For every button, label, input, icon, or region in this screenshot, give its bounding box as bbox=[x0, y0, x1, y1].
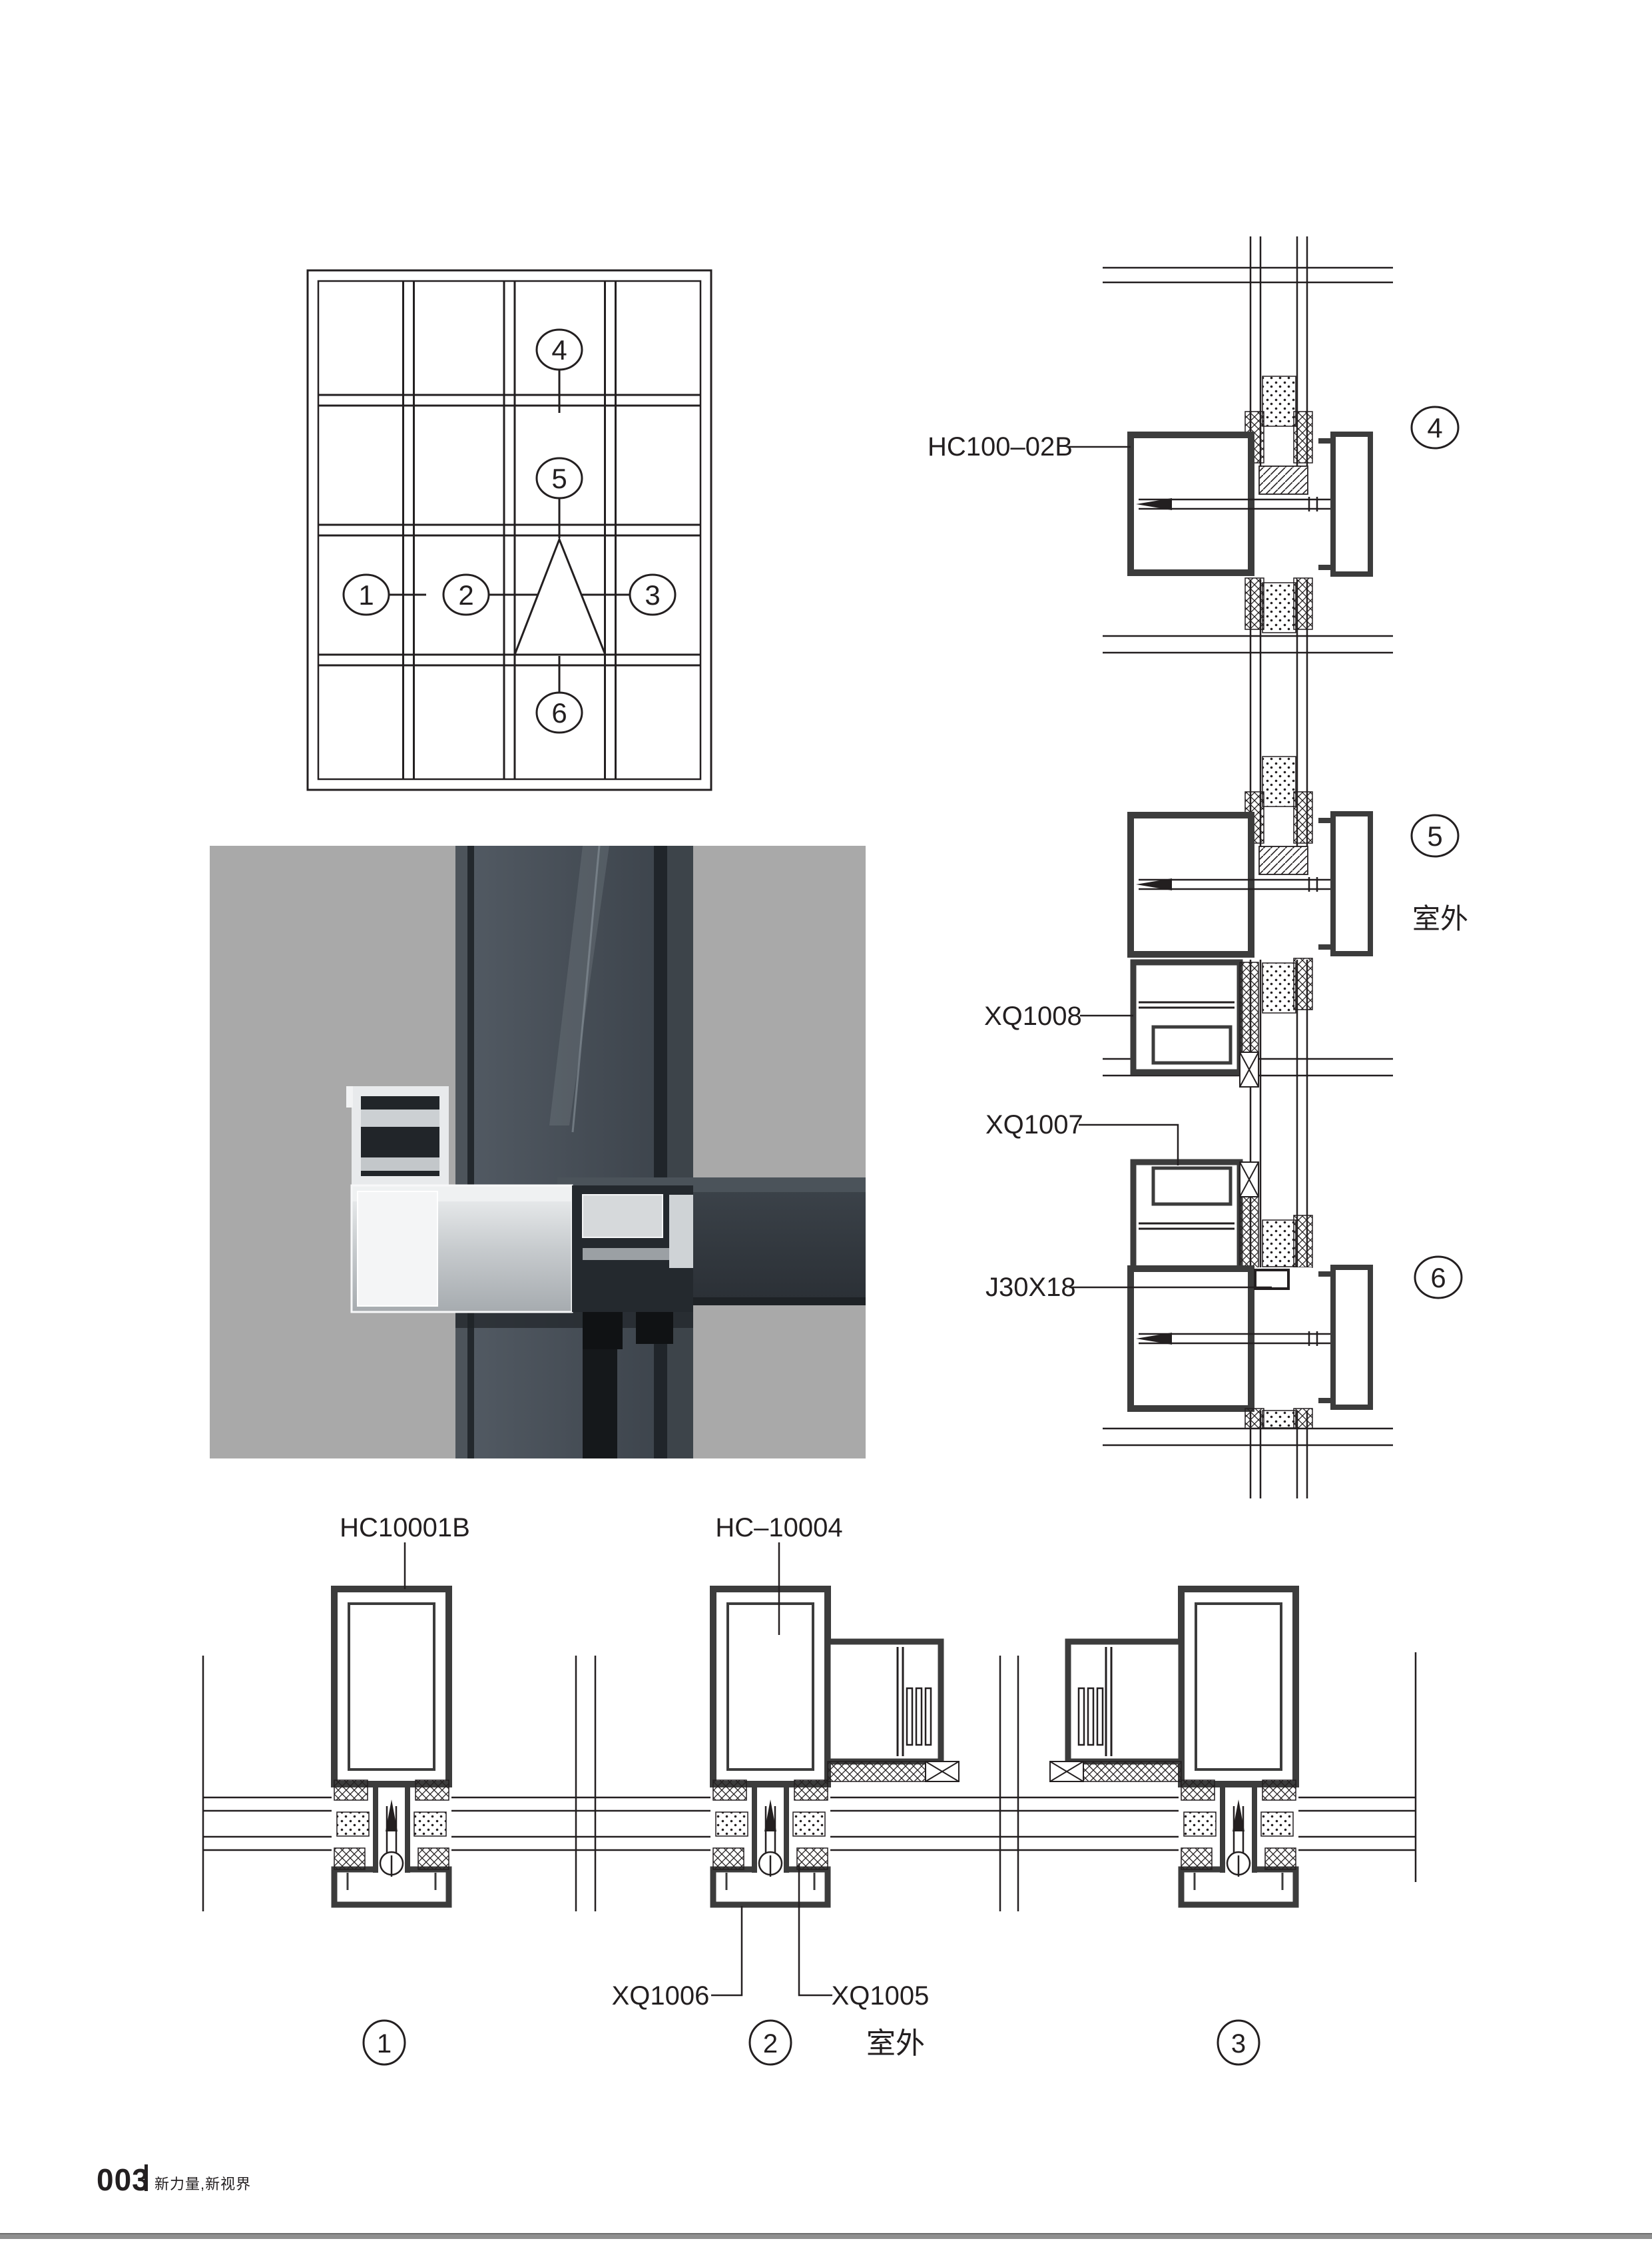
callout-number-5: 5 bbox=[551, 463, 567, 494]
page-number: 003 bbox=[97, 2162, 150, 2198]
product-photo bbox=[210, 846, 866, 1458]
cover-cap bbox=[1318, 1267, 1370, 1407]
cover-cap bbox=[1318, 434, 1370, 574]
horizontal-section-details: HC10001B 1 bbox=[166, 1498, 1445, 2098]
corner-bracket bbox=[1255, 1270, 1288, 1289]
detail-1-assembly bbox=[332, 1589, 451, 1905]
callout-number-2: 2 bbox=[458, 579, 473, 611]
mullion-profile-box bbox=[1181, 1589, 1296, 1784]
callout-number-1: 1 bbox=[358, 579, 374, 611]
footer-tagline: 新力量,新视界 bbox=[154, 2172, 251, 2194]
glass-pane bbox=[474, 846, 654, 1458]
mullion-column bbox=[455, 846, 693, 1458]
elevation-callouts: 4 5 1 2 3 6 bbox=[344, 330, 675, 733]
callout-number-6: 6 bbox=[1430, 1262, 1446, 1293]
elevation-diagram: 4 5 1 2 3 6 bbox=[286, 253, 739, 806]
callout-number-3: 3 bbox=[1231, 2029, 1246, 2059]
footer-divider bbox=[144, 2164, 148, 2191]
mullion-profile-box bbox=[334, 1589, 449, 1784]
part-label-hc-10004: HC–10004 bbox=[715, 1513, 842, 1542]
part-label-xq1005: XQ1005 bbox=[832, 1981, 930, 2011]
main-box-section bbox=[352, 1185, 572, 1312]
outdoor-label: 室外 bbox=[866, 2027, 925, 2060]
callout-number-4: 4 bbox=[551, 334, 567, 366]
part-label-j30x18: J30X18 bbox=[985, 1273, 1076, 1302]
vent-profile-xq1008 bbox=[1133, 962, 1258, 1087]
vent-profile-xq1007 bbox=[1133, 1162, 1258, 1269]
detail-4-assembly bbox=[1131, 376, 1370, 633]
callout-number-3: 3 bbox=[645, 579, 660, 611]
callout-number-2: 2 bbox=[763, 2029, 778, 2059]
part-label-xq1008: XQ1008 bbox=[984, 1002, 1082, 1031]
part-label-xq1006: XQ1006 bbox=[612, 1981, 710, 2011]
mullion-profile-box bbox=[713, 1589, 828, 1784]
callout-number-1: 1 bbox=[377, 2029, 392, 2059]
detail-5-assembly bbox=[1131, 757, 1370, 1087]
detail-6-assembly bbox=[1131, 1162, 1370, 1429]
vent-profile bbox=[828, 1642, 959, 1781]
part-label-hc100-02b: HC100–02B bbox=[928, 432, 1073, 462]
part-label-xq1007: XQ1007 bbox=[985, 1110, 1083, 1139]
vertical-section-details: HC100–02B 4 bbox=[919, 233, 1518, 1498]
catalog-page: 4 5 1 2 3 6 bbox=[0, 0, 1652, 2241]
connector-section bbox=[572, 1185, 693, 1312]
vent-profile bbox=[1050, 1642, 1181, 1781]
callout-number-6: 6 bbox=[551, 697, 567, 729]
vent-triangle-symbol bbox=[515, 539, 605, 655]
upper-profile-section bbox=[346, 1086, 449, 1185]
part-label-hc10001b: HC10001B bbox=[340, 1513, 470, 1542]
detail-2-assembly bbox=[710, 1589, 959, 1905]
outdoor-label: 室外 bbox=[1412, 903, 1468, 934]
elevation-grid bbox=[308, 270, 711, 790]
bottom-bar bbox=[0, 2233, 1652, 2239]
cover-cap bbox=[1318, 814, 1370, 954]
leader-xq1006 bbox=[711, 1906, 742, 1995]
callout-number-4: 4 bbox=[1427, 412, 1442, 444]
callout-number-5: 5 bbox=[1427, 820, 1442, 852]
detail-3-assembly bbox=[1050, 1589, 1298, 1905]
